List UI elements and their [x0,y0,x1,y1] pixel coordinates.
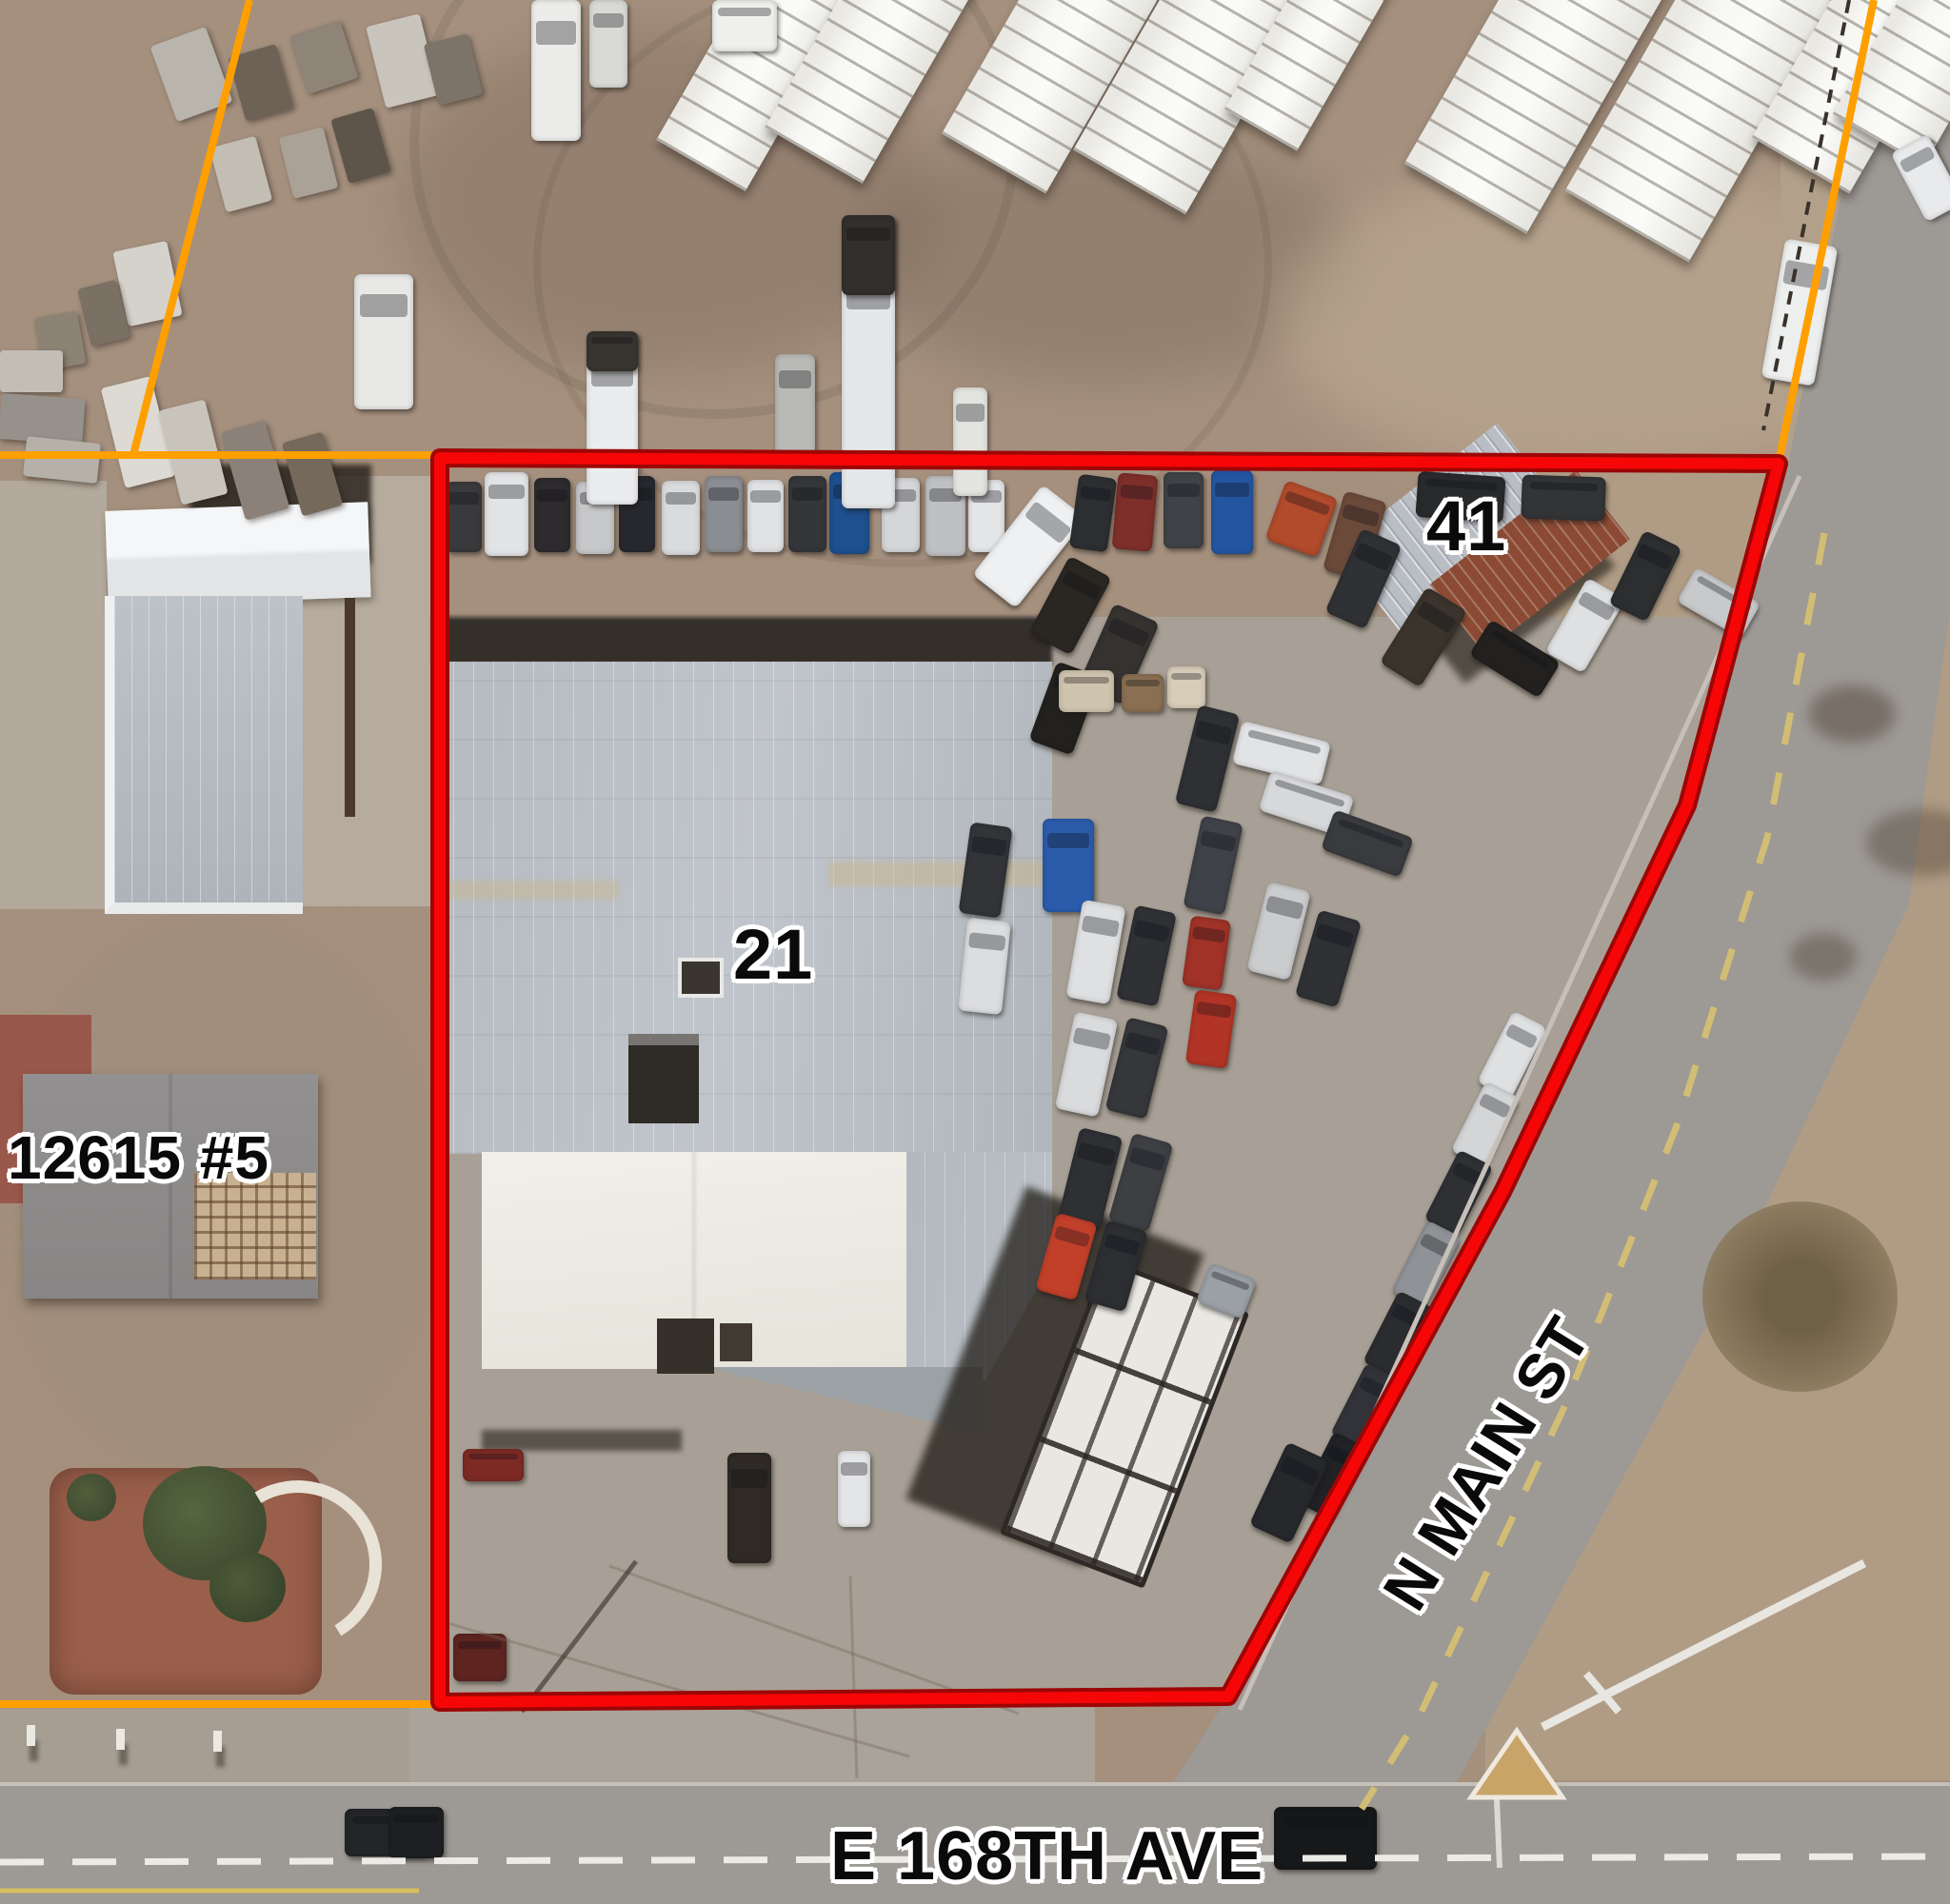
parcel-outline-edge [440,458,1779,1702]
pavement-joint [850,1576,857,1778]
pole-shadow [522,1561,636,1712]
warning-sign-triangle [1471,1731,1562,1797]
sign-pole [1497,1799,1500,1868]
turn-marking [1542,1563,1864,1727]
aerial-parcel-map: 21 41 12615 #5 N MAIN ST E 168TH AVE [0,0,1950,1904]
boundary-line-northwest-diagonal [133,0,249,455]
boundary-overlay [0,0,1950,1904]
parcel-label-41: 41 [1426,491,1506,562]
fence-dashed-line [1763,0,1849,430]
street-label-e-168th-ave: E 168TH AVE [830,1822,1264,1891]
boundary-line-northeast-diagonal [1779,0,1874,462]
neighbor-address-label: 12615 #5 [8,1127,269,1188]
parcel-label-21: 21 [733,920,813,990]
parcel-outline [440,458,1779,1702]
